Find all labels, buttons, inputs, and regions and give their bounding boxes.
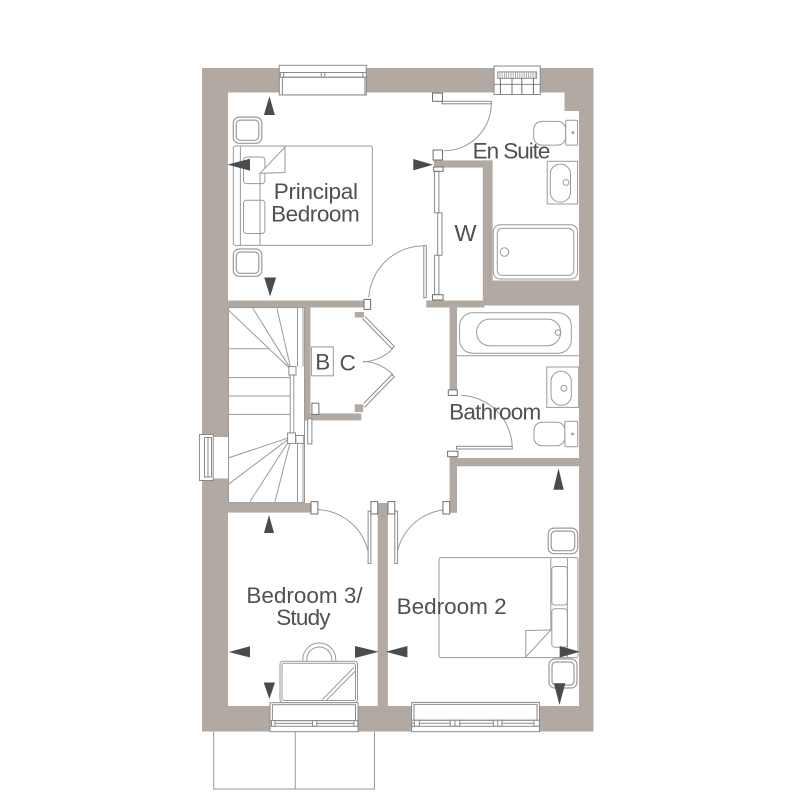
- svg-text:Principal: Principal: [274, 179, 358, 204]
- svg-text:Bedroom 2: Bedroom 2: [397, 594, 507, 619]
- svg-text:Bathroom: Bathroom: [449, 400, 540, 425]
- svg-text:Study: Study: [276, 605, 331, 630]
- svg-text:C: C: [340, 351, 356, 376]
- svg-text:B: B: [315, 350, 330, 375]
- svg-text:Bedroom: Bedroom: [271, 202, 359, 227]
- svg-text:En Suite: En Suite: [473, 139, 550, 164]
- svg-text:W: W: [454, 220, 477, 246]
